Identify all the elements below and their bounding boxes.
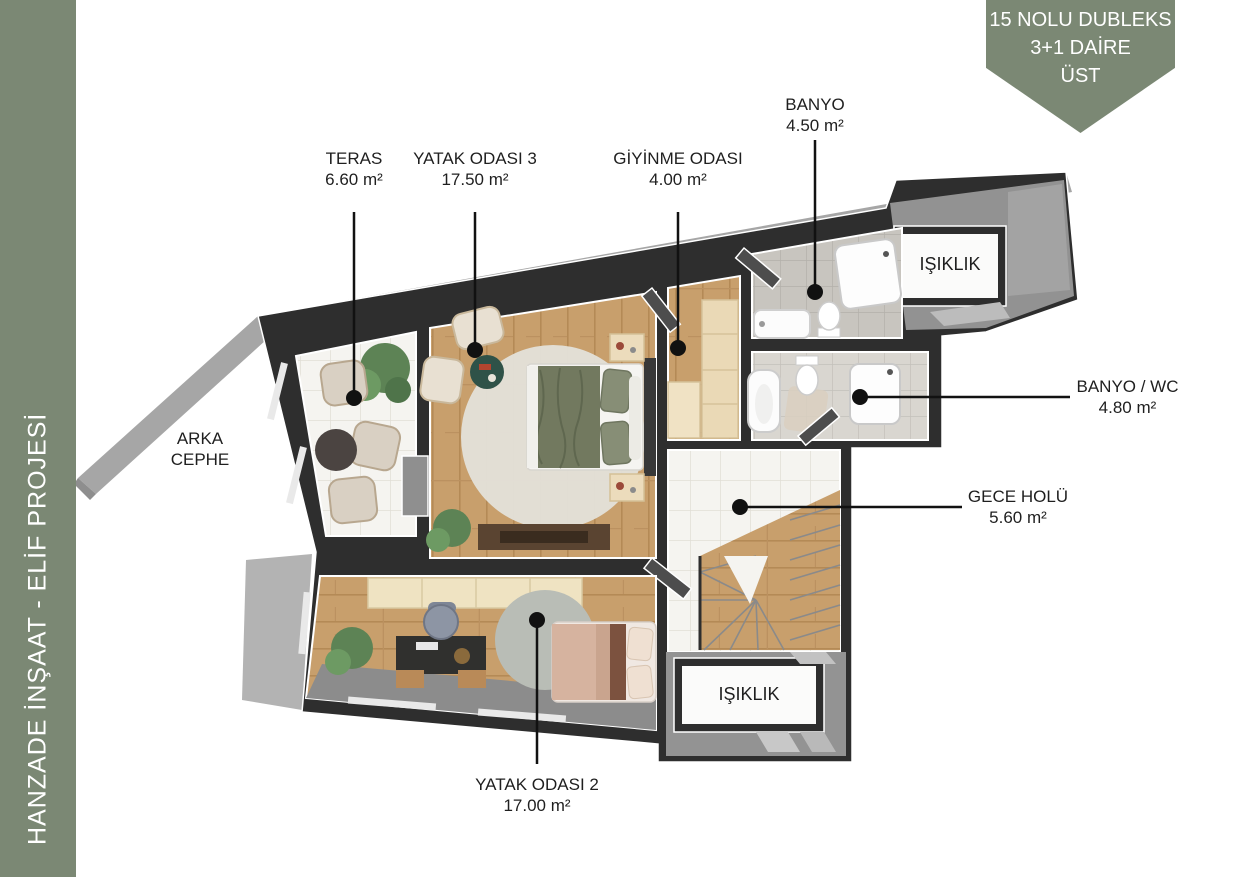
room-label-banyo: BANYO 4.50 m² [745, 94, 885, 136]
shaft-label-bottom: IŞIKLIK [684, 684, 814, 705]
unit-badge-line1: 15 NOLU DUBLEKS [986, 6, 1175, 34]
room-label-teras: TERAS 6.60 m² [284, 148, 424, 190]
brand-sidebar: HANZADE İNŞAAT - ELİF PROJESİ [0, 0, 76, 877]
bedroom3-side-table [470, 355, 504, 389]
brand-text: HANZADE İNŞAAT - ELİF PROJESİ [0, 399, 76, 859]
room-label-gece-holu: GECE HOLÜ 5.60 m² [948, 486, 1088, 528]
shaft-label-top: IŞIKLIK [900, 254, 1000, 275]
floor-plan-page: TERAS 6.60 m² YATAK ODASI 3 17.50 m² GİY… [0, 0, 1240, 877]
room-bedroom3 [419, 292, 656, 558]
room-label-giyinme-odasi: GİYİNME ODASI 4.00 m² [608, 148, 748, 190]
room-label-yatak-odasi-3: YATAK ODASI 3 17.50 m² [405, 148, 545, 190]
room-label-banyo-wc: BANYO / WC 4.80 m² [1055, 376, 1200, 418]
terrace-door [402, 456, 428, 516]
terrace-table [315, 429, 357, 471]
unit-badge-line2: 3+1 DAİRE [986, 34, 1175, 62]
office-chair [424, 605, 458, 639]
room-hall [644, 450, 840, 652]
facade-label: ARKA CEPHE [140, 428, 260, 470]
toilet [818, 302, 840, 337]
unit-badge-line3: ÜST [986, 62, 1175, 90]
single-bed [552, 622, 656, 702]
room-bathroom-wc [748, 352, 928, 445]
wc-toilet [796, 356, 818, 395]
double-bed [527, 358, 656, 476]
shower [834, 238, 902, 310]
tv-unit [478, 524, 610, 550]
room-label-yatak-odasi-2: YATAK ODASI 2 17.00 m² [467, 774, 607, 816]
